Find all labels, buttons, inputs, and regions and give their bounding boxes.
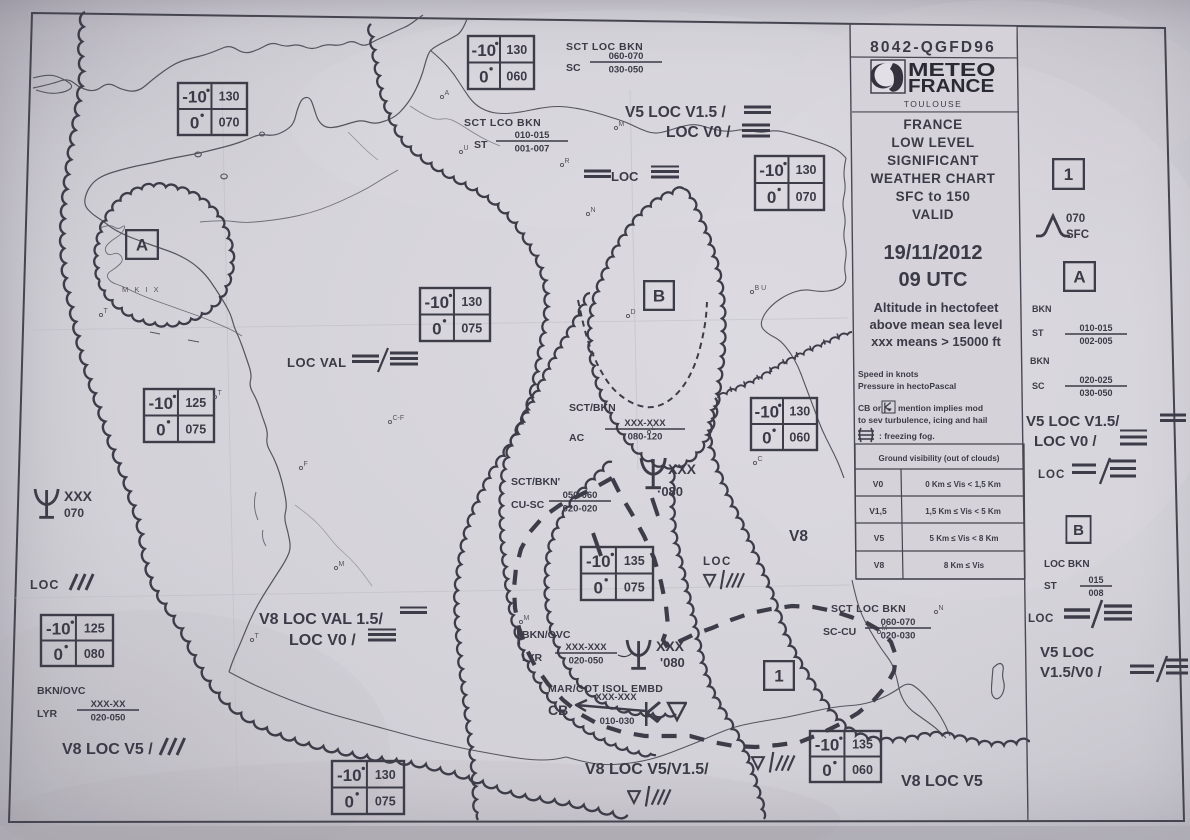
svg-text:0: 0 [762,429,771,448]
svg-text:8042-QGFD96: 8042-QGFD96 [870,39,996,56]
svg-text:0: 0 [822,761,831,780]
svg-text:FRANCE: FRANCE [903,117,962,132]
svg-text:130: 130 [461,295,482,309]
svg-text:070: 070 [219,116,240,130]
svg-text:125: 125 [84,621,105,635]
svg-text:-10: -10 [586,552,611,571]
svg-text:080-120: 080-120 [628,432,663,443]
svg-text:M: M [524,615,530,622]
svg-text:010-030: 010-030 [600,716,635,727]
svg-text:0: 0 [594,578,603,597]
svg-text:-10: -10 [472,41,497,60]
svg-text:-10: -10 [759,161,784,180]
svg-text:to sev turbulence, icing and h: to sev turbulence, icing and hail [858,415,987,425]
svg-text:: freezing fog.: : freezing fog. [879,431,935,441]
svg-text:L: L [652,425,656,432]
svg-text:-10: -10 [425,293,450,312]
svg-text:B: B [653,287,665,306]
svg-text:V5 LOC V1.5 /: V5 LOC V1.5 / [625,104,726,121]
svg-text:070: 070 [796,190,817,204]
svg-text:0: 0 [156,420,165,439]
svg-text:V8: V8 [789,528,808,545]
svg-text:XXX: XXX [668,461,697,477]
svg-text:5 Km ≤ Vis < 8 Km: 5 Km ≤ Vis < 8 Km [930,534,999,543]
svg-text:V5 LOC V1.5/: V5 LOC V1.5/ [1026,413,1120,430]
svg-text:LOC VAL: LOC VAL [287,355,347,370]
svg-text:V8 LOC VAL 1.5/: V8 LOC VAL 1.5/ [259,611,383,628]
svg-text:A: A [136,236,148,255]
svg-text:BKN: BKN [1030,356,1050,366]
svg-text:0: 0 [432,319,441,338]
svg-text:V8: V8 [874,560,885,570]
svg-text:M: M [882,625,888,632]
svg-text:-10: -10 [815,735,840,754]
svg-text:130: 130 [789,405,810,419]
svg-text:130: 130 [506,43,527,57]
svg-text:FRANCE: FRANCE [908,76,994,97]
svg-text:SC: SC [566,62,581,74]
svg-text:LYR: LYR [522,652,542,664]
svg-text:0: 0 [345,792,354,811]
svg-text:T: T [104,308,109,315]
svg-text:1,5 Km ≤ Vis < 5 Km: 1,5 Km ≤ Vis < 5 Km [925,507,1001,516]
svg-text:M: M [619,121,625,128]
svg-text:BKN/OVC: BKN/OVC [37,685,86,697]
svg-text:020-020: 020-020 [563,504,598,515]
svg-text:SFC to 150: SFC to 150 [896,189,971,204]
svg-text:LOC: LOC [30,578,59,592]
svg-text:A: A [445,90,450,97]
svg-text:V5: V5 [874,533,885,543]
svg-text:BKN/OVC: BKN/OVC [522,629,571,641]
svg-text:AC: AC [569,432,585,444]
svg-text:V8 LOC V5/V1.5/: V8 LOC V5/V1.5/ [585,761,709,778]
svg-text:R: R [565,158,570,165]
svg-text:LOC V0 /: LOC V0 / [666,124,731,141]
svg-text:Ground visibility (out of clou: Ground visibility (out of clouds) [879,454,1000,463]
svg-text:060: 060 [852,763,873,777]
svg-text:075: 075 [185,422,206,436]
svg-text:LOC V0 /: LOC V0 / [1034,433,1097,450]
svg-text:ST: ST [474,139,488,151]
svg-text:SCT/BKN: SCT/BKN [569,402,616,414]
svg-text:070: 070 [1066,213,1085,225]
svg-text:8 Km ≤ Vis: 8 Km ≤ Vis [944,561,985,570]
svg-text:070: 070 [64,506,84,520]
svg-text:0: 0 [479,67,488,86]
svg-text:015: 015 [1088,575,1103,585]
svg-text:mention implies mod: mention implies mod [898,403,983,413]
svg-text:V1,5: V1,5 [869,506,887,516]
svg-text:V8 LOC V5 /: V8 LOC V5 / [62,741,153,758]
svg-text:002-005: 002-005 [1079,336,1112,346]
svg-text:135: 135 [624,554,645,568]
svg-text:T: T [218,390,223,397]
svg-text:C-F: C-F [393,415,405,422]
svg-text:080: 080 [84,647,105,661]
svg-text:125: 125 [185,396,206,410]
svg-text:SCT LCO BKN: SCT LCO BKN [464,117,541,129]
svg-text:V5 LOC: V5 LOC [1040,644,1094,661]
svg-text:010-015: 010-015 [1079,323,1112,333]
svg-text:0: 0 [190,114,199,133]
svg-text:SCT LOC BKN: SCT LOC BKN [831,603,906,615]
svg-text:CB or: CB or [858,403,882,413]
svg-text:LOW LEVEL: LOW LEVEL [891,135,974,150]
svg-text:XXX-XXX: XXX-XXX [565,642,607,653]
svg-text:075: 075 [461,321,482,335]
svg-text:020-050: 020-050 [91,713,126,724]
svg-text:0 Km ≤ Vis < 1,5 Km: 0 Km ≤ Vis < 1,5 Km [925,480,1001,489]
svg-text:LOC: LOC [1038,469,1065,481]
svg-text:010-015: 010-015 [515,130,551,141]
svg-text:030-050: 030-050 [609,65,644,76]
svg-text:020-050: 020-050 [569,656,604,667]
svg-text:B: B [1073,522,1084,539]
svg-text:XXX: XXX [656,638,685,654]
svg-text:-10: -10 [149,394,174,413]
svg-text:Pressure in hectoPascal: Pressure in hectoPascal [858,381,956,391]
svg-text:SIGNIFICANT: SIGNIFICANT [887,153,979,168]
svg-text:'080: '080 [660,655,685,670]
svg-text:-10: -10 [46,619,71,638]
svg-text:075: 075 [375,794,396,808]
svg-text:CB: CB [548,702,568,718]
svg-text:N: N [939,605,944,612]
svg-text:M K I X: M K I X [122,285,161,294]
svg-text:T: T [255,633,260,640]
svg-text:CU-SC: CU-SC [511,499,545,511]
svg-text:030-050: 030-050 [1079,388,1112,398]
svg-text:130: 130 [796,163,817,177]
svg-text:VALID: VALID [912,207,954,222]
svg-text:D: D [631,309,636,316]
svg-text:A: A [1073,268,1085,287]
svg-text:N: N [591,207,596,214]
svg-text:WEATHER CHART: WEATHER CHART [871,171,996,186]
svg-text:LOC: LOC [611,169,639,184]
svg-text:135: 135 [852,737,873,751]
svg-text:LOC BKN: LOC BKN [1044,559,1090,570]
svg-text:xxx means > 15000 ft: xxx means > 15000 ft [871,334,1001,349]
svg-text:0: 0 [767,188,776,207]
svg-text:C: C [758,456,763,463]
svg-text:above mean sea level: above mean sea level [870,317,1003,332]
svg-text:09 UTC: 09 UTC [899,269,968,291]
svg-text:SC-CU: SC-CU [823,626,856,638]
svg-text:XXX-XXX: XXX-XXX [624,418,666,429]
svg-text:B U: B U [755,285,767,292]
svg-text:130: 130 [219,90,240,104]
svg-text:020-030: 020-030 [881,631,916,642]
svg-text:LOC V0 /: LOC V0 / [289,632,356,649]
svg-text:0: 0 [54,645,63,664]
svg-text:LOC: LOC [703,556,732,568]
svg-text:Altitude in hectofeet: Altitude in hectofeet [874,300,1000,315]
svg-text:050-060: 050-060 [563,490,598,501]
svg-text:060-070: 060-070 [609,51,644,62]
svg-text:F: F [304,461,308,468]
svg-text:020-025: 020-025 [1079,375,1112,385]
svg-text:SCT/BKN': SCT/BKN' [511,476,560,488]
svg-text:XXX-XX: XXX-XX [91,699,127,710]
svg-text:Speed in knots: Speed in knots [858,369,919,379]
svg-text:1: 1 [774,667,783,686]
svg-text:075: 075 [624,580,645,594]
svg-text:060: 060 [506,69,527,83]
svg-text:ST: ST [1032,328,1044,338]
svg-text:V1.5/V0 /: V1.5/V0 / [1040,664,1103,681]
svg-text:LOC: LOC [1028,613,1054,625]
svg-text:U: U [464,145,469,152]
svg-text:SFC: SFC [1066,229,1089,241]
svg-text:008: 008 [1088,588,1103,598]
svg-text:130: 130 [375,768,396,782]
svg-text:-10: -10 [755,403,780,422]
svg-text:BKN: BKN [1032,304,1052,314]
svg-text:19/11/2012: 19/11/2012 [884,242,983,264]
svg-text:·080: ·080 [657,484,683,499]
svg-text:-10: -10 [182,88,207,107]
svg-text:1: 1 [1064,165,1073,184]
svg-text:LYR: LYR [37,708,57,720]
svg-text:XXX: XXX [64,488,93,504]
svg-text:V0: V0 [873,479,884,489]
svg-text:TOULOUSE: TOULOUSE [904,99,963,109]
svg-text:SC: SC [1032,381,1045,391]
svg-text:001-007: 001-007 [515,144,550,155]
svg-text:060: 060 [789,431,810,445]
svg-text:-10: -10 [337,766,362,785]
svg-text:ST: ST [1044,581,1057,592]
svg-text:XXX-XXX: XXX-XXX [595,692,637,703]
svg-text:V8 LOC V5: V8 LOC V5 [901,773,983,790]
svg-text:M: M [339,561,345,568]
